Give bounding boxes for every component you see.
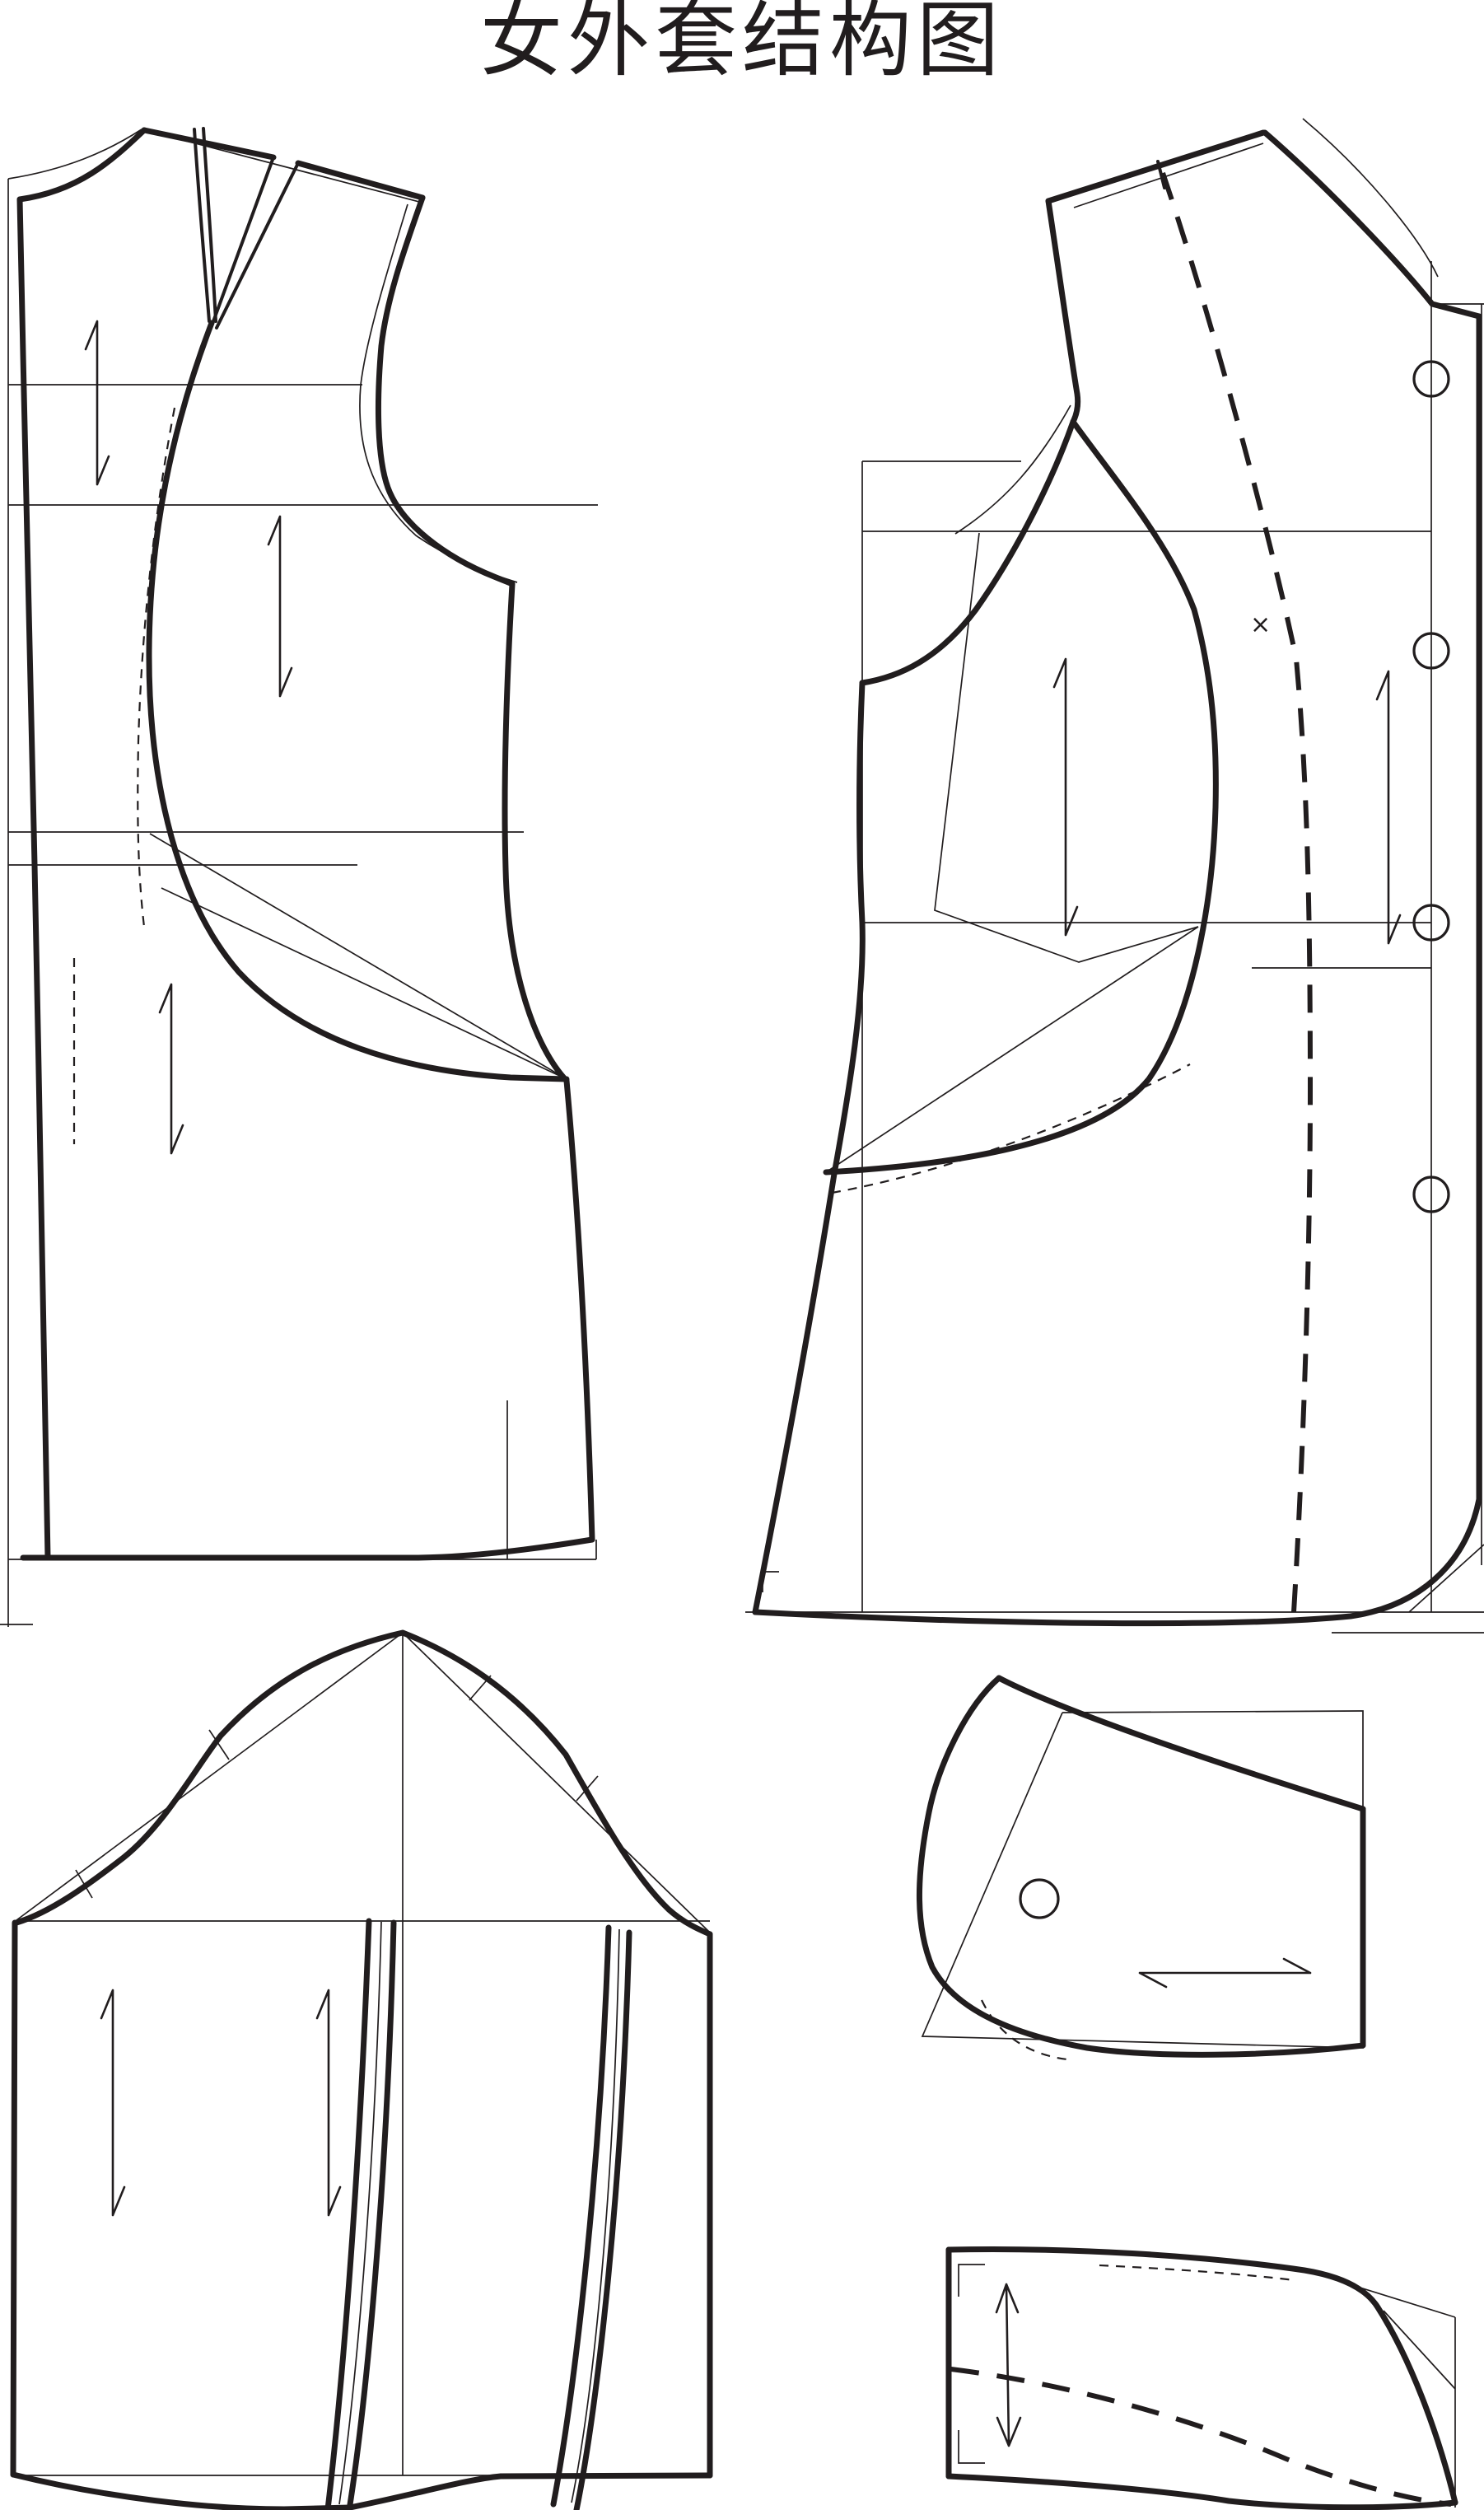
sleeve-cuff (13, 2475, 710, 2509)
button-icon (1020, 1880, 1058, 1918)
front-pocket-dashed (832, 1064, 1190, 1193)
front-side-seam (755, 683, 862, 1612)
sleeve-cap-diagonal-right (403, 1633, 710, 1933)
back-armhole-construction (360, 204, 517, 582)
pocket-construction-box (922, 1711, 1363, 2048)
grainline-arrow-icon (101, 1990, 124, 2215)
grainline-arrow-icon (86, 321, 109, 484)
back-princess-ease-dashed (138, 408, 175, 927)
pattern-diagram-page: 女外套结构图 (0, 0, 1484, 2510)
grainline-arrow-icon (1054, 659, 1077, 935)
grainline-arrow-icon (268, 516, 292, 696)
collar-bottom-edge (949, 2476, 1455, 2508)
back-cb-seam (20, 199, 48, 1558)
back-shoulder-dart-leg-1 (212, 157, 273, 324)
grainline-arrow-icon (317, 1990, 340, 2215)
collar-roll-line-dashed (951, 2369, 1451, 2504)
sleeve-left-edge (13, 1923, 15, 2475)
collar-piece (949, 2249, 1455, 2508)
sleeve-cap-diagonal-left (16, 1633, 403, 1920)
collar-top-edge (949, 2249, 1455, 2503)
sleeve-cap (16, 1633, 710, 1934)
back-armhole (378, 198, 512, 584)
collar-corner-mark (959, 2430, 985, 2463)
cross-mark: × (1250, 610, 1271, 639)
pattern-drawing: × (0, 0, 1484, 2510)
collar-inner-diagonal (1384, 2311, 1455, 2389)
grainline-arrow-icon (160, 984, 183, 1153)
collar-corner-mark (959, 2265, 985, 2297)
sleeve-vent-right-1 (553, 1928, 609, 2504)
back-side-seam (505, 584, 592, 1540)
back-neckline (20, 130, 144, 199)
front-neckline (1265, 133, 1479, 316)
pocket-flap-top (999, 1678, 1363, 1809)
front-armhole (1048, 201, 1078, 422)
front-neck-construction (1303, 119, 1438, 277)
grainline-arrow-icon (1140, 1959, 1310, 1987)
front-roll-line-dashed (1163, 173, 1310, 1612)
back-shoulder-seam-a (144, 130, 273, 157)
front-shoulder-seam (1048, 133, 1263, 201)
front-hem-corner-diagonal (1409, 1545, 1484, 1612)
back-shoulder-seam-b (298, 163, 422, 198)
double-arrow-icon (996, 2284, 1020, 2446)
pocket-piece (919, 1678, 1363, 2059)
back-piece (0, 129, 598, 1627)
back-shoulder-dart-leg-2 (217, 163, 298, 328)
front-pocket-diagonal (826, 927, 1198, 1172)
sleeve-piece (12, 1633, 710, 2510)
front-piece: × (745, 119, 1484, 1633)
grainline-arrow-icon (1377, 671, 1400, 943)
